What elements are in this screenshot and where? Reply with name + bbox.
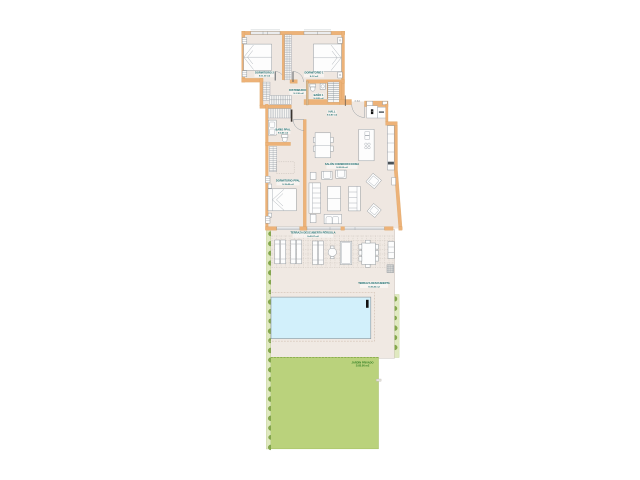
svg-text:2.6A: 2.6A (355, 99, 361, 103)
svg-text:HALL: HALL (329, 110, 336, 114)
svg-text:S:41.07 m2: S:41.07 m2 (307, 235, 319, 238)
svg-text:DORMITORIO 2: DORMITORIO 2 (255, 70, 275, 74)
svg-text:S:4.80 m2: S:4.80 m2 (327, 114, 338, 117)
svg-text:S:85.00 m2: S:85.00 m2 (356, 364, 370, 368)
svg-text:S:12 m2: S:12 m2 (310, 76, 319, 78)
svg-text:S:39.40 m2: S:39.40 m2 (368, 285, 380, 288)
svg-text:S:32.00 m2: S:32.00 m2 (336, 167, 348, 169)
svg-text:DORMITORIO 1: DORMITORIO 1 (305, 71, 325, 75)
svg-text:S:4.45 m2: S:4.45 m2 (278, 131, 289, 134)
svg-text:S:11.00 m2: S:11.00 m2 (259, 76, 271, 78)
svg-text:S:19.45 m2: S:19.45 m2 (282, 183, 294, 186)
svg-text:S:1.30 m2: S:1.30 m2 (293, 93, 304, 95)
svg-text:DISTRIBUIDOR: DISTRIBUIDOR (289, 88, 308, 92)
svg-text:TERRAZA DESCUBIERTA: TERRAZA DESCUBIERTA (358, 281, 390, 285)
svg-text:DORMITORIO PPAL: DORMITORIO PPAL (276, 179, 301, 183)
